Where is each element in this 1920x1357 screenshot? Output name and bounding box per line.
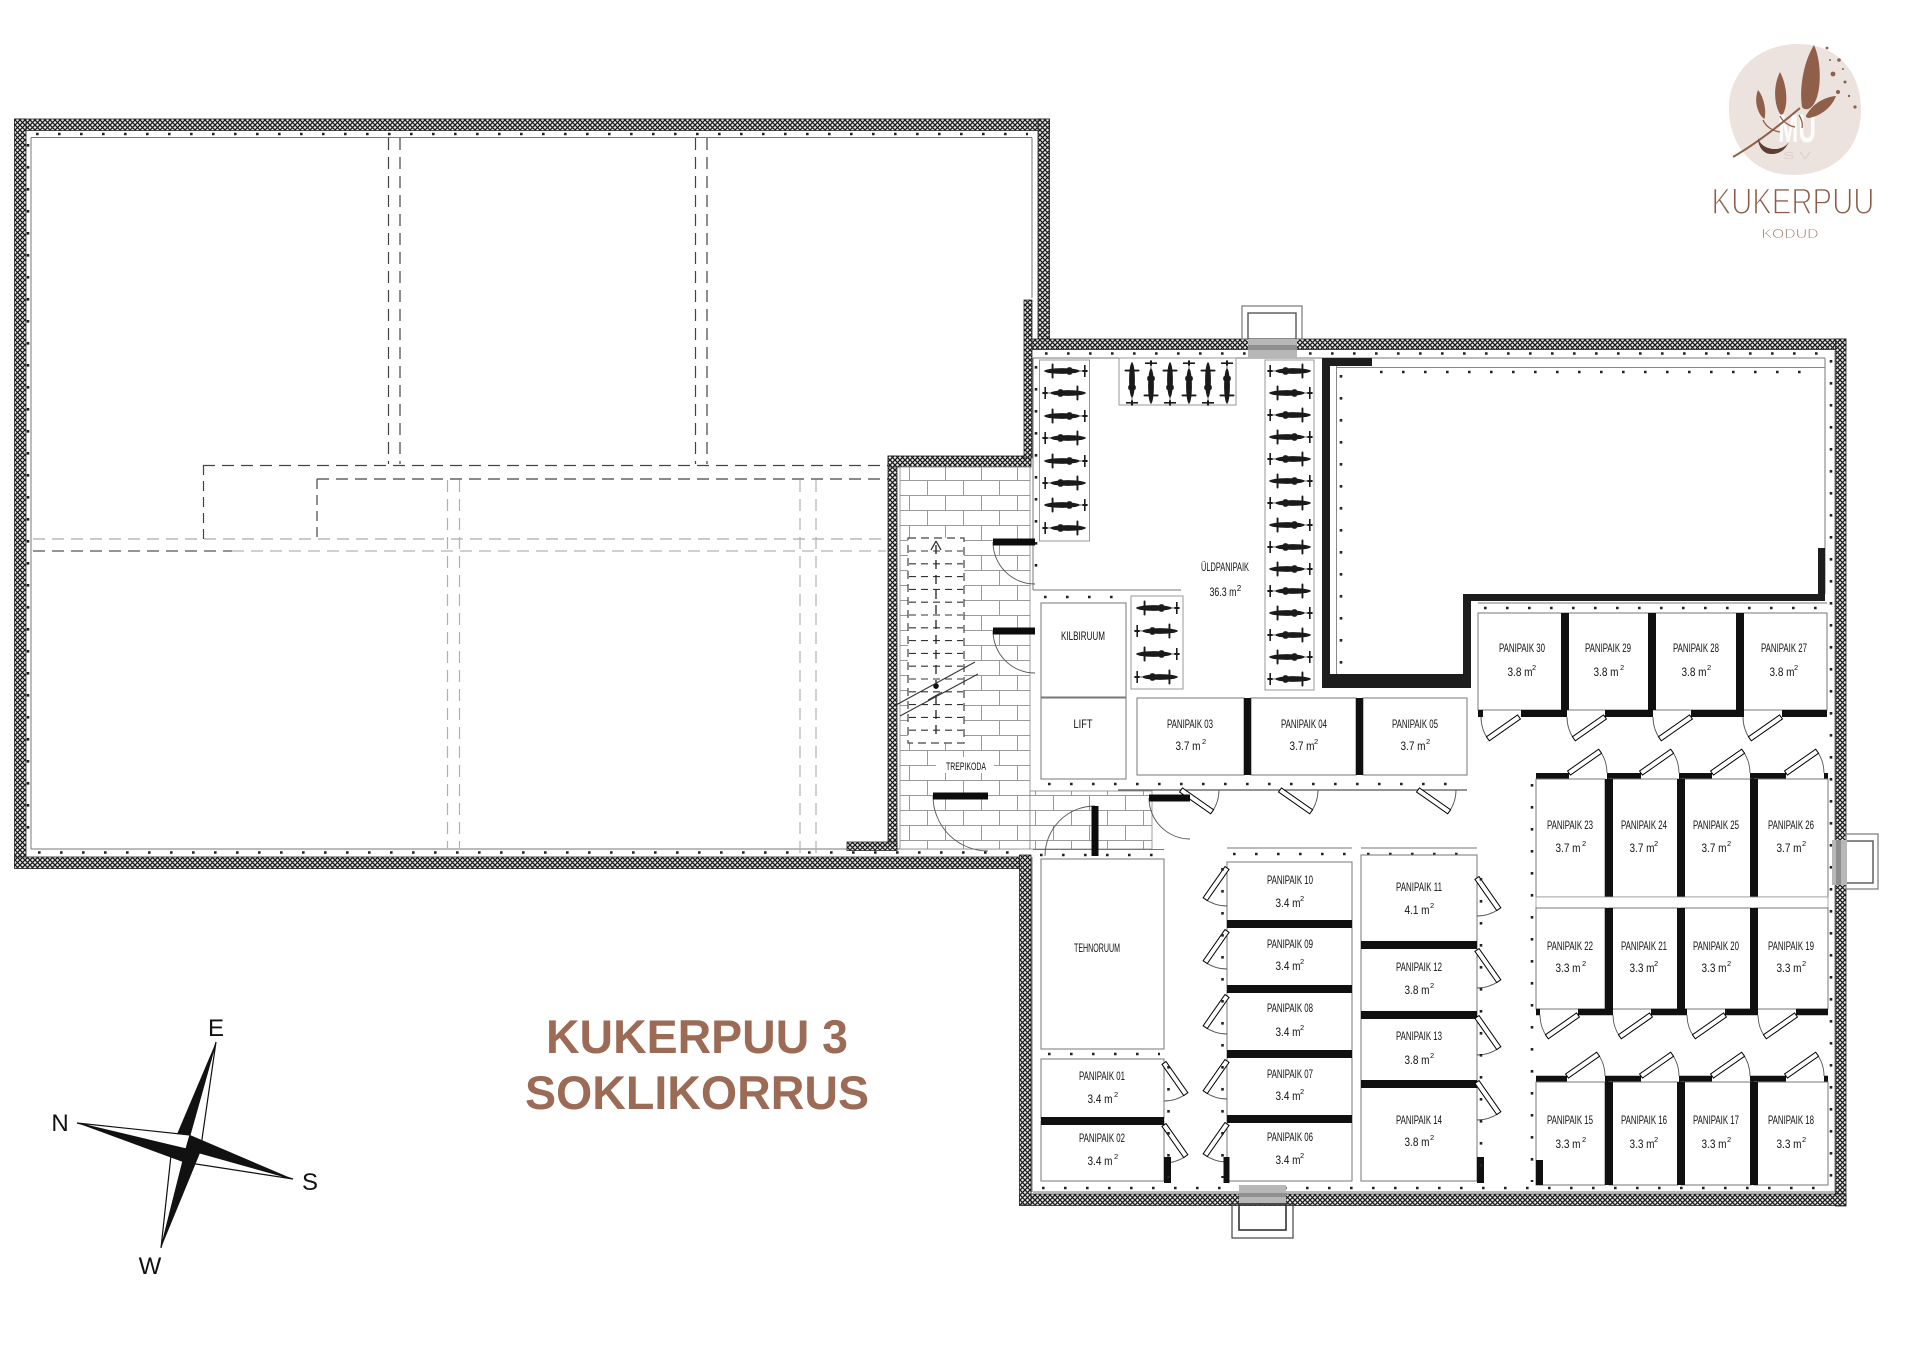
svg-text:PANIPAIK 20: PANIPAIK 20 [1693, 939, 1739, 953]
svg-text:3.3 m: 3.3 m [1702, 1137, 1727, 1151]
svg-text:2: 2 [1654, 959, 1658, 968]
svg-text:PANIPAIK 05: PANIPAIK 05 [1392, 717, 1438, 731]
svg-text:3.8 m: 3.8 m [1405, 983, 1430, 997]
svg-text:TEHNORUUM: TEHNORUUM [1074, 941, 1120, 955]
svg-text:3.4 m: 3.4 m [1088, 1092, 1113, 1106]
svg-text:2: 2 [1300, 1023, 1304, 1032]
svg-text:S: S [302, 1169, 318, 1196]
svg-text:3.8 m: 3.8 m [1594, 665, 1619, 679]
svg-text:2: 2 [1300, 957, 1304, 966]
svg-text:PANIPAIK 30: PANIPAIK 30 [1499, 641, 1545, 655]
svg-text:3.8 m: 3.8 m [1405, 1053, 1430, 1067]
svg-text:E: E [208, 1015, 224, 1042]
svg-text:PANIPAIK 14: PANIPAIK 14 [1396, 1113, 1442, 1127]
svg-text:2: 2 [1426, 737, 1430, 746]
svg-text:PANIPAIK 13: PANIPAIK 13 [1396, 1029, 1442, 1043]
svg-text:KILBIRUUM: KILBIRUUM [1061, 629, 1105, 643]
svg-text:3.4 m: 3.4 m [1088, 1154, 1113, 1168]
svg-text:2: 2 [1654, 839, 1658, 848]
svg-text:PANIPAIK 11: PANIPAIK 11 [1396, 880, 1442, 894]
svg-text:PANIPAIK 01: PANIPAIK 01 [1079, 1069, 1125, 1083]
svg-text:PANIPAIK 24: PANIPAIK 24 [1621, 818, 1667, 832]
svg-text:2: 2 [1620, 663, 1624, 672]
svg-text:2: 2 [1114, 1152, 1118, 1161]
svg-text:3.3 m: 3.3 m [1556, 961, 1581, 975]
svg-text:ÜLDPANIPAIK: ÜLDPANIPAIK [1201, 560, 1249, 574]
svg-text:2: 2 [1654, 1135, 1658, 1144]
svg-text:PANIPAIK 19: PANIPAIK 19 [1768, 939, 1814, 953]
svg-text:2: 2 [1582, 839, 1586, 848]
svg-text:3.3 m: 3.3 m [1777, 961, 1802, 975]
svg-text:TREPIKODA: TREPIKODA [946, 761, 986, 773]
svg-text:2: 2 [1300, 1151, 1304, 1160]
svg-text:3.3 m: 3.3 m [1630, 961, 1655, 975]
svg-text:36.3 m: 36.3 m [1210, 585, 1237, 599]
svg-text:PANIPAIK 08: PANIPAIK 08 [1267, 1001, 1313, 1015]
svg-text:3.4 m: 3.4 m [1276, 1025, 1301, 1039]
svg-text:3.8 m: 3.8 m [1508, 665, 1533, 679]
svg-text:PANIPAIK 16: PANIPAIK 16 [1621, 1113, 1667, 1127]
svg-text:2: 2 [1430, 981, 1434, 990]
svg-text:3.7 m: 3.7 m [1556, 841, 1581, 855]
svg-text:PANIPAIK 06: PANIPAIK 06 [1267, 1130, 1313, 1144]
svg-text:2: 2 [1202, 737, 1206, 746]
svg-text:2: 2 [1430, 1133, 1434, 1142]
svg-text:2: 2 [1727, 839, 1731, 848]
svg-text:2: 2 [1582, 1135, 1586, 1144]
svg-text:2: 2 [1802, 1135, 1806, 1144]
svg-text:PANIPAIK 26: PANIPAIK 26 [1768, 818, 1814, 832]
svg-text:PANIPAIK 21: PANIPAIK 21 [1621, 939, 1667, 953]
svg-text:3.4 m: 3.4 m [1276, 896, 1301, 910]
svg-text:2: 2 [1237, 584, 1242, 593]
svg-text:3.7 m: 3.7 m [1630, 841, 1655, 855]
svg-text:PANIPAIK 07: PANIPAIK 07 [1267, 1067, 1313, 1081]
svg-text:PANIPAIK 25: PANIPAIK 25 [1693, 818, 1739, 832]
svg-text:PANIPAIK 18: PANIPAIK 18 [1768, 1113, 1814, 1127]
svg-text:PANIPAIK 12: PANIPAIK 12 [1396, 960, 1442, 974]
svg-text:4.1 m: 4.1 m [1405, 903, 1430, 917]
svg-text:PANIPAIK 10: PANIPAIK 10 [1267, 873, 1313, 887]
svg-text:PANIPAIK 03: PANIPAIK 03 [1167, 717, 1213, 731]
svg-text:3.3 m: 3.3 m [1702, 961, 1727, 975]
svg-text:2: 2 [1802, 839, 1806, 848]
svg-text:PANIPAIK 27: PANIPAIK 27 [1761, 641, 1807, 655]
svg-text:2: 2 [1727, 959, 1731, 968]
svg-text:3.7 m: 3.7 m [1777, 841, 1802, 855]
svg-text:N: N [51, 1110, 68, 1137]
svg-text:3.3 m: 3.3 m [1556, 1137, 1581, 1151]
svg-text:3.8 m: 3.8 m [1770, 665, 1795, 679]
svg-text:3.7 m: 3.7 m [1290, 739, 1315, 753]
svg-text:3.3 m: 3.3 m [1777, 1137, 1802, 1151]
svg-text:3.4 m: 3.4 m [1276, 1153, 1301, 1167]
svg-text:2: 2 [1430, 1051, 1434, 1060]
svg-text:PANIPAIK 29: PANIPAIK 29 [1585, 641, 1631, 655]
svg-text:3.7 m: 3.7 m [1401, 739, 1426, 753]
svg-text:KUKERPUU: KUKERPUU [1712, 181, 1875, 222]
svg-text:3.7 m: 3.7 m [1702, 841, 1727, 855]
svg-text:2: 2 [1430, 901, 1434, 910]
svg-text:PANIPAIK 17: PANIPAIK 17 [1693, 1113, 1739, 1127]
svg-text:KUKERPUU 3: KUKERPUU 3 [546, 1010, 848, 1063]
svg-text:PANIPAIK 02: PANIPAIK 02 [1079, 1131, 1125, 1145]
svg-text:3.7 m: 3.7 m [1176, 739, 1201, 753]
svg-text:2: 2 [1300, 894, 1304, 903]
svg-text:2: 2 [1582, 959, 1586, 968]
svg-text:3.3 m: 3.3 m [1630, 1137, 1655, 1151]
svg-text:PANIPAIK 22: PANIPAIK 22 [1547, 939, 1593, 953]
svg-text:PANIPAIK 15: PANIPAIK 15 [1547, 1113, 1593, 1127]
svg-text:PANIPAIK 09: PANIPAIK 09 [1267, 937, 1313, 951]
svg-text:W: W [139, 1253, 162, 1280]
svg-text:2: 2 [1314, 737, 1318, 746]
svg-text:PANIPAIK 04: PANIPAIK 04 [1281, 717, 1327, 731]
svg-text:LIFT: LIFT [1074, 717, 1094, 731]
svg-text:PANIPAIK 23: PANIPAIK 23 [1547, 818, 1593, 832]
svg-text:2: 2 [1707, 663, 1711, 672]
svg-text:3.4 m: 3.4 m [1276, 1089, 1301, 1103]
svg-text:KODUD: KODUD [1762, 226, 1819, 241]
svg-text:3.4 m: 3.4 m [1276, 959, 1301, 973]
svg-text:SOKLIKORRUS: SOKLIKORRUS [525, 1066, 869, 1119]
svg-text:2: 2 [1300, 1087, 1304, 1096]
svg-text:2: 2 [1727, 1135, 1731, 1144]
svg-text:3.8 m: 3.8 m [1405, 1135, 1430, 1149]
svg-text:2: 2 [1802, 959, 1806, 968]
svg-text:3.8 m: 3.8 m [1682, 665, 1707, 679]
svg-text:PANIPAIK 28: PANIPAIK 28 [1673, 641, 1719, 655]
svg-text:S V: S V [1783, 151, 1812, 162]
svg-text:2: 2 [1794, 663, 1798, 672]
svg-text:2: 2 [1532, 663, 1536, 672]
svg-text:2: 2 [1114, 1090, 1118, 1099]
